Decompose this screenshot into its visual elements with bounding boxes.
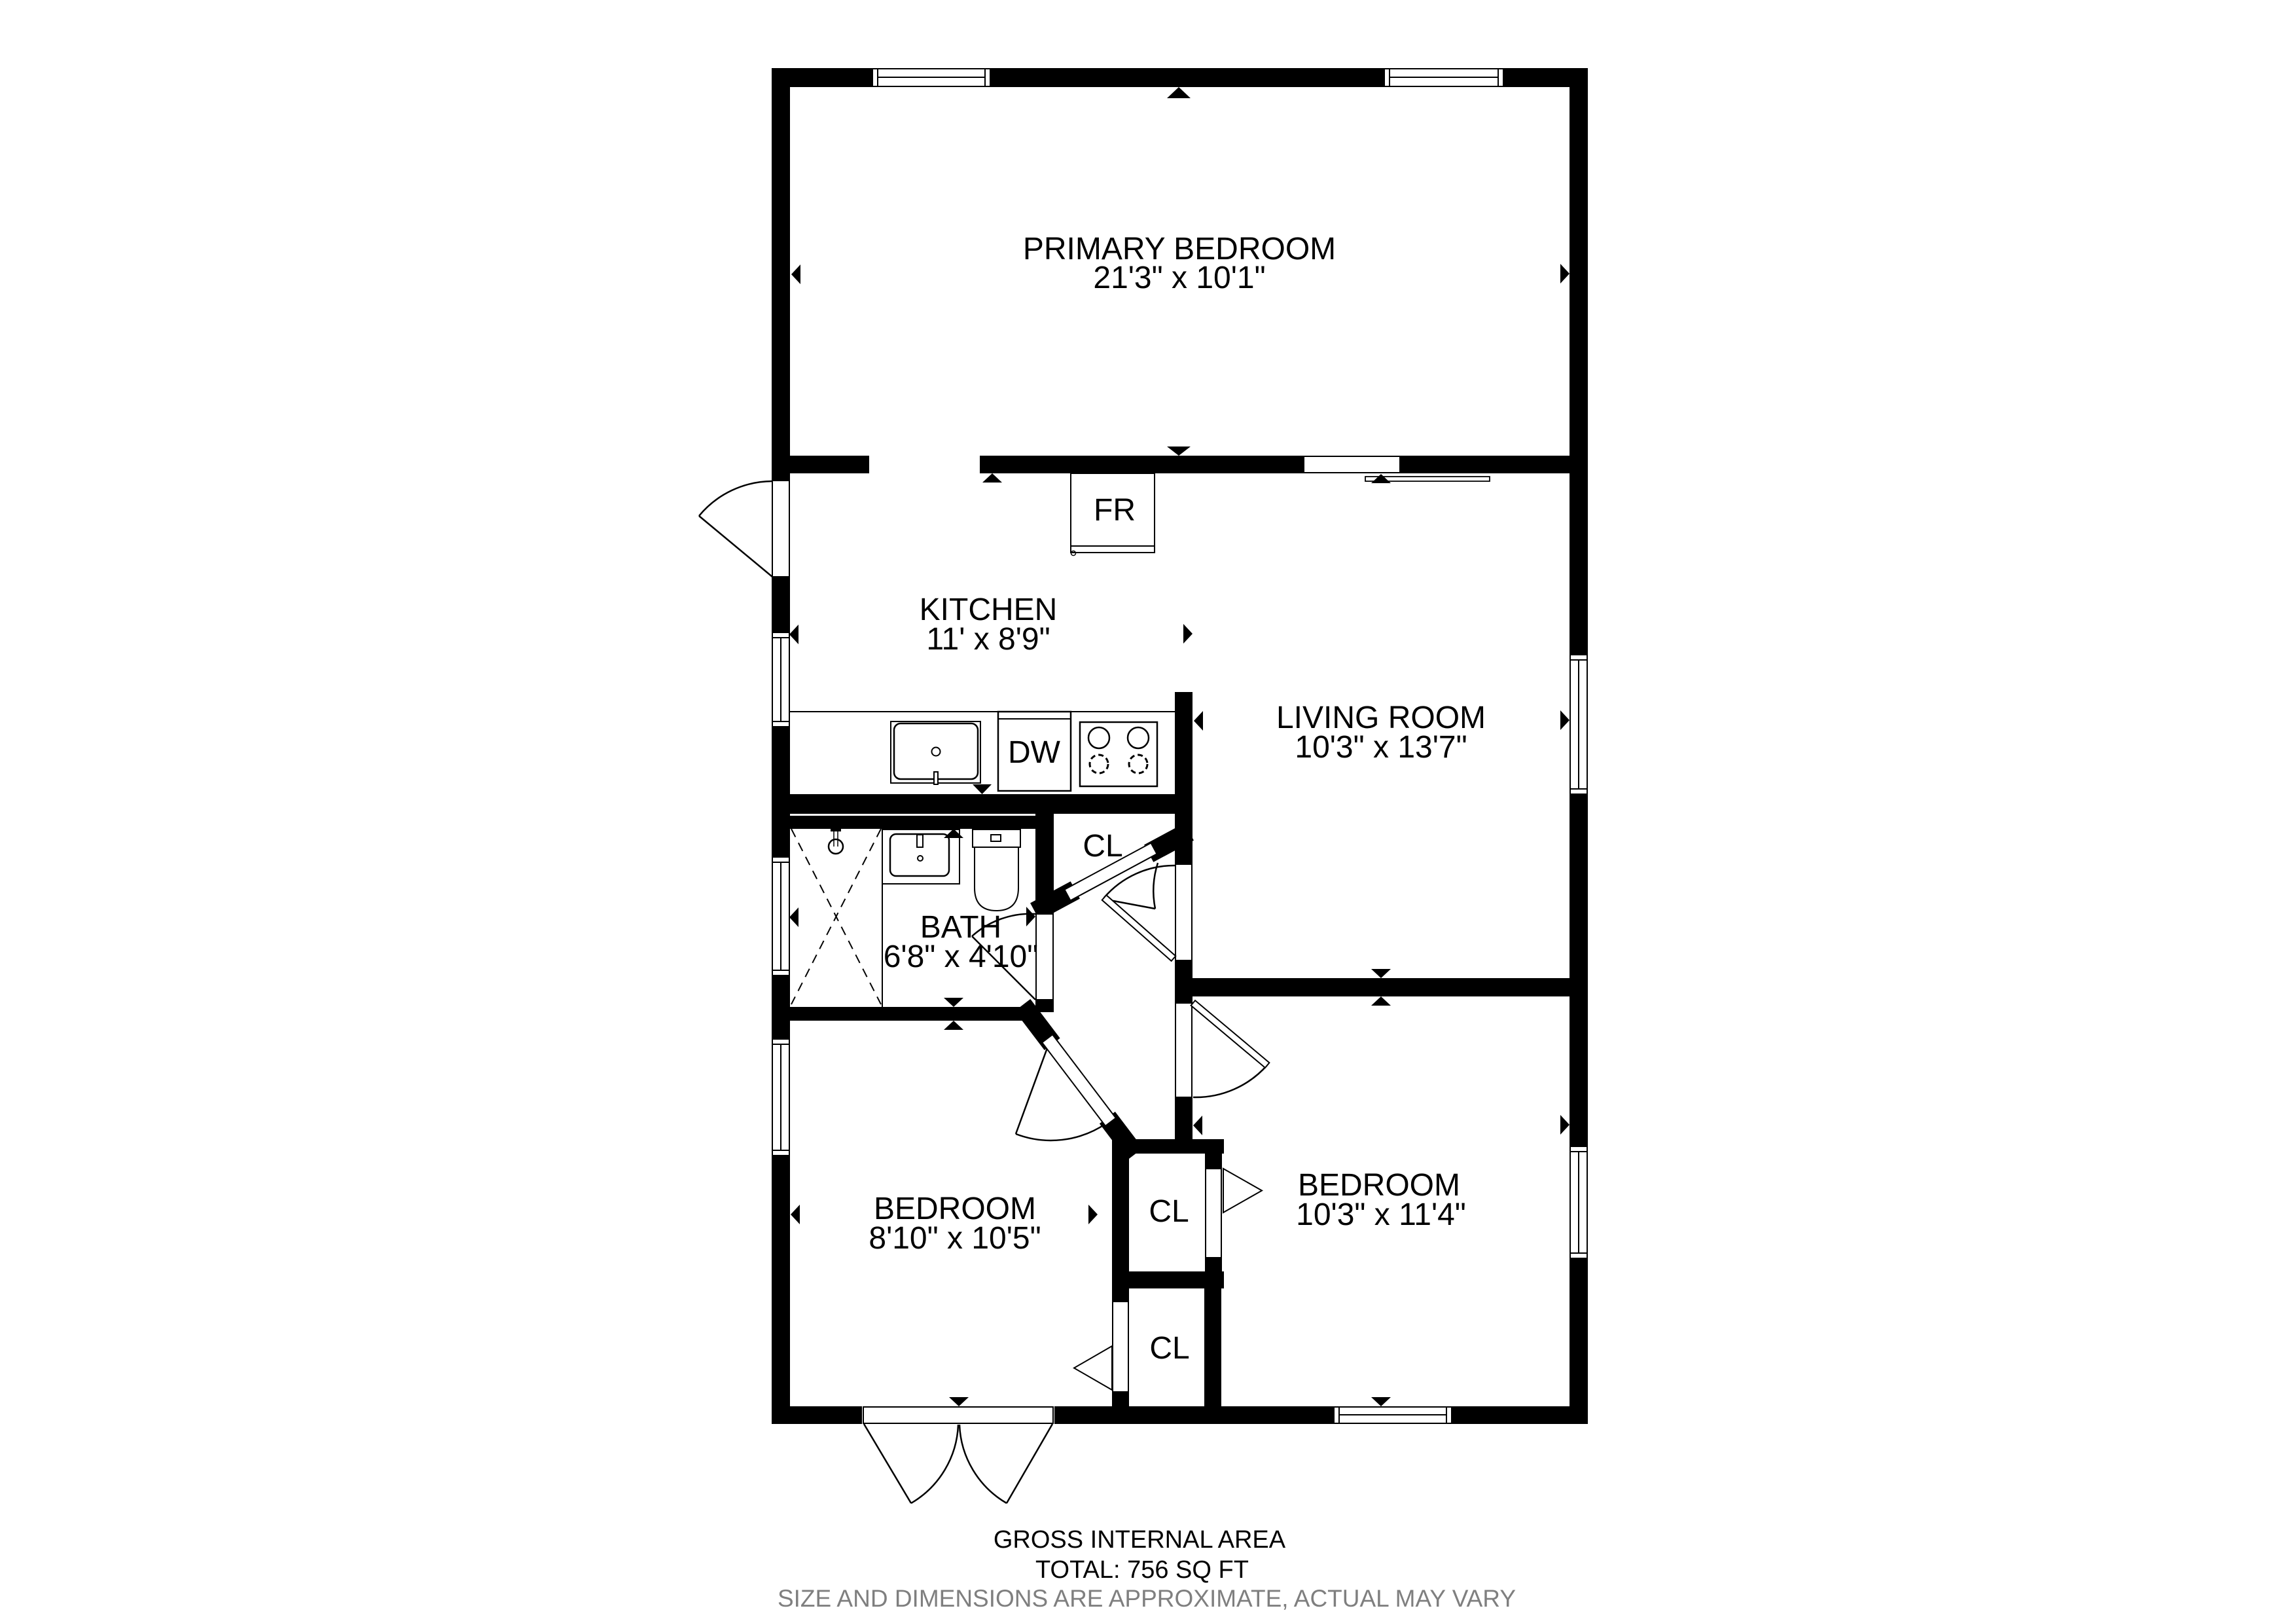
svg-text:21'3" x 10'1": 21'3" x 10'1" (1093, 261, 1265, 295)
svg-text:GROSS INTERNAL AREA: GROSS INTERNAL AREA (994, 1526, 1286, 1554)
svg-text:6'8" x 4'10": 6'8" x 4'10" (884, 939, 1039, 974)
svg-text:SIZE AND DIMENSIONS ARE APPROX: SIZE AND DIMENSIONS ARE APPROXIMATE, ACT… (778, 1585, 1516, 1612)
svg-text:DW: DW (1008, 735, 1061, 770)
svg-text:8'10" x 10'5": 8'10" x 10'5" (869, 1221, 1041, 1256)
svg-text:TOTAL: 756 SQ FT: TOTAL: 756 SQ FT (1035, 1556, 1249, 1584)
svg-text:10'3" x 11'4": 10'3" x 11'4" (1296, 1197, 1466, 1232)
svg-text:CL: CL (1149, 1331, 1189, 1366)
svg-text:FR: FR (1094, 493, 1136, 528)
svg-text:11' x 8'9": 11' x 8'9" (926, 622, 1050, 657)
svg-text:CL: CL (1149, 1194, 1189, 1229)
svg-text:10'3" x 13'7": 10'3" x 13'7" (1295, 730, 1467, 765)
svg-text:CL: CL (1083, 829, 1122, 864)
